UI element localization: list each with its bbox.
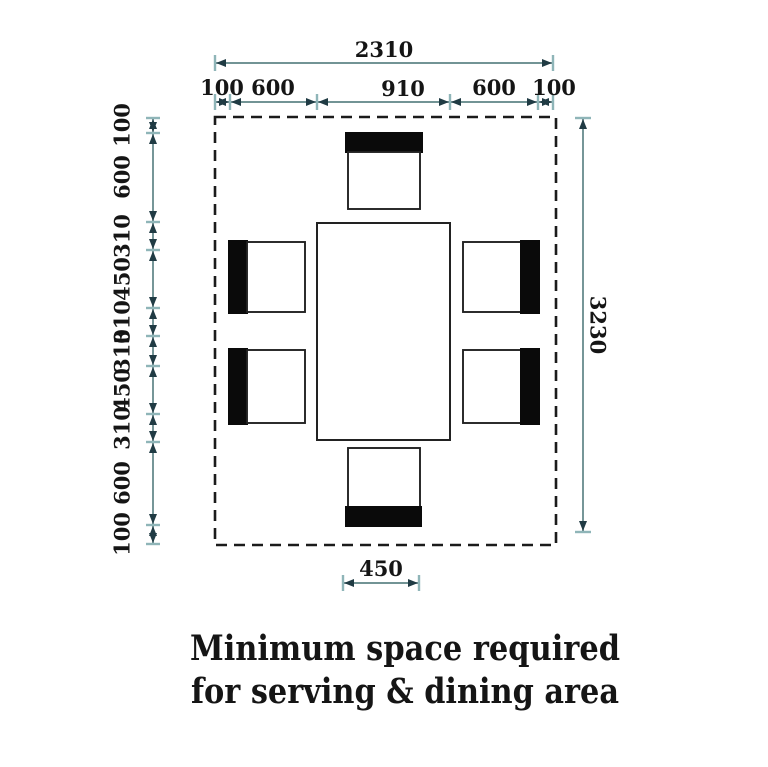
chair-left-lower-seat	[247, 350, 305, 423]
chair-right-lower-backrest	[520, 348, 540, 425]
dim-label-left-6: 450	[110, 368, 135, 412]
arrowhead	[149, 251, 157, 261]
chair-right-upper-backrest	[520, 240, 540, 314]
chair-left-upper-seat	[247, 242, 305, 312]
floor-plan-diagram: 2310 100 600 910 600 100	[0, 0, 768, 767]
chair-bottom-seat	[348, 448, 420, 507]
dim-left-segments: 100 600 310 450 310 310 450 310 600 100	[110, 103, 161, 556]
arrowhead	[306, 98, 316, 106]
dim-label-left-0: 100	[110, 103, 135, 147]
dining-table	[317, 223, 450, 440]
arrowhead	[149, 355, 157, 365]
arrowhead	[542, 59, 552, 67]
dim-label-top-4: 100	[532, 75, 576, 100]
dim-label-chair-clearance: 450	[359, 556, 403, 581]
dim-label-left-9: 100	[110, 512, 135, 556]
dim-overall-width: 2310	[215, 37, 553, 71]
chair-right-upper	[463, 240, 540, 314]
caption-line-1: Minimum space required	[190, 628, 620, 669]
chair-bottom	[345, 448, 422, 527]
dim-label-top-0: 100	[200, 75, 244, 100]
arrowhead	[216, 59, 226, 67]
chair-right-lower-seat	[463, 350, 521, 423]
chair-right-lower	[463, 348, 540, 425]
dim-label-top-1: 600	[251, 75, 295, 100]
arrowhead	[149, 309, 157, 319]
chair-left-upper	[228, 240, 305, 314]
arrowhead	[439, 98, 449, 106]
arrowhead	[149, 514, 157, 524]
arrowhead	[149, 325, 157, 335]
arrowhead	[149, 443, 157, 453]
arrowhead	[149, 337, 157, 347]
dim-overall-height: 3230	[575, 118, 611, 532]
chair-left-upper-backrest	[228, 240, 248, 314]
dim-label-overall-height: 3230	[586, 296, 611, 354]
arrowhead	[149, 533, 157, 543]
dim-label-top-2: 910	[381, 76, 425, 101]
arrowhead	[149, 134, 157, 144]
chair-top	[345, 132, 423, 209]
dim-label-left-3: 450	[110, 257, 135, 301]
floor-plan-figure: 2310 100 600 910 600 100	[0, 0, 768, 767]
arrowhead	[149, 239, 157, 249]
arrowhead	[149, 403, 157, 413]
arrowhead	[579, 521, 587, 531]
arrowhead	[149, 297, 157, 307]
caption-line-2: for serving & dining area	[191, 671, 619, 712]
dim-top-segments: 100 600 910 600 100	[200, 75, 576, 110]
dim-label-top-3: 600	[472, 75, 516, 100]
dim-label-overall-width: 2310	[355, 37, 413, 62]
arrowhead	[408, 579, 418, 587]
dim-label-left-5: 310	[110, 329, 135, 373]
chair-left-lower-backrest	[228, 348, 248, 425]
chair-right-upper-seat	[463, 242, 521, 312]
dim-chair-clearance: 450	[343, 556, 419, 591]
chair-top-backrest	[345, 132, 423, 153]
chair-top-seat	[348, 152, 420, 209]
arrowhead	[149, 367, 157, 377]
arrowhead	[149, 415, 157, 425]
arrowhead	[451, 98, 461, 106]
dim-label-left-1: 600	[110, 155, 135, 199]
arrowhead	[318, 98, 328, 106]
dim-label-left-7: 310	[110, 406, 135, 450]
arrowhead	[149, 431, 157, 441]
arrowhead	[149, 211, 157, 221]
chair-left-lower	[228, 348, 305, 425]
dim-label-left-8: 600	[110, 461, 135, 505]
arrowhead	[149, 223, 157, 233]
arrowhead	[344, 579, 354, 587]
dim-label-left-2: 310	[110, 214, 135, 258]
arrowhead	[579, 119, 587, 129]
chair-bottom-backrest	[345, 506, 422, 527]
